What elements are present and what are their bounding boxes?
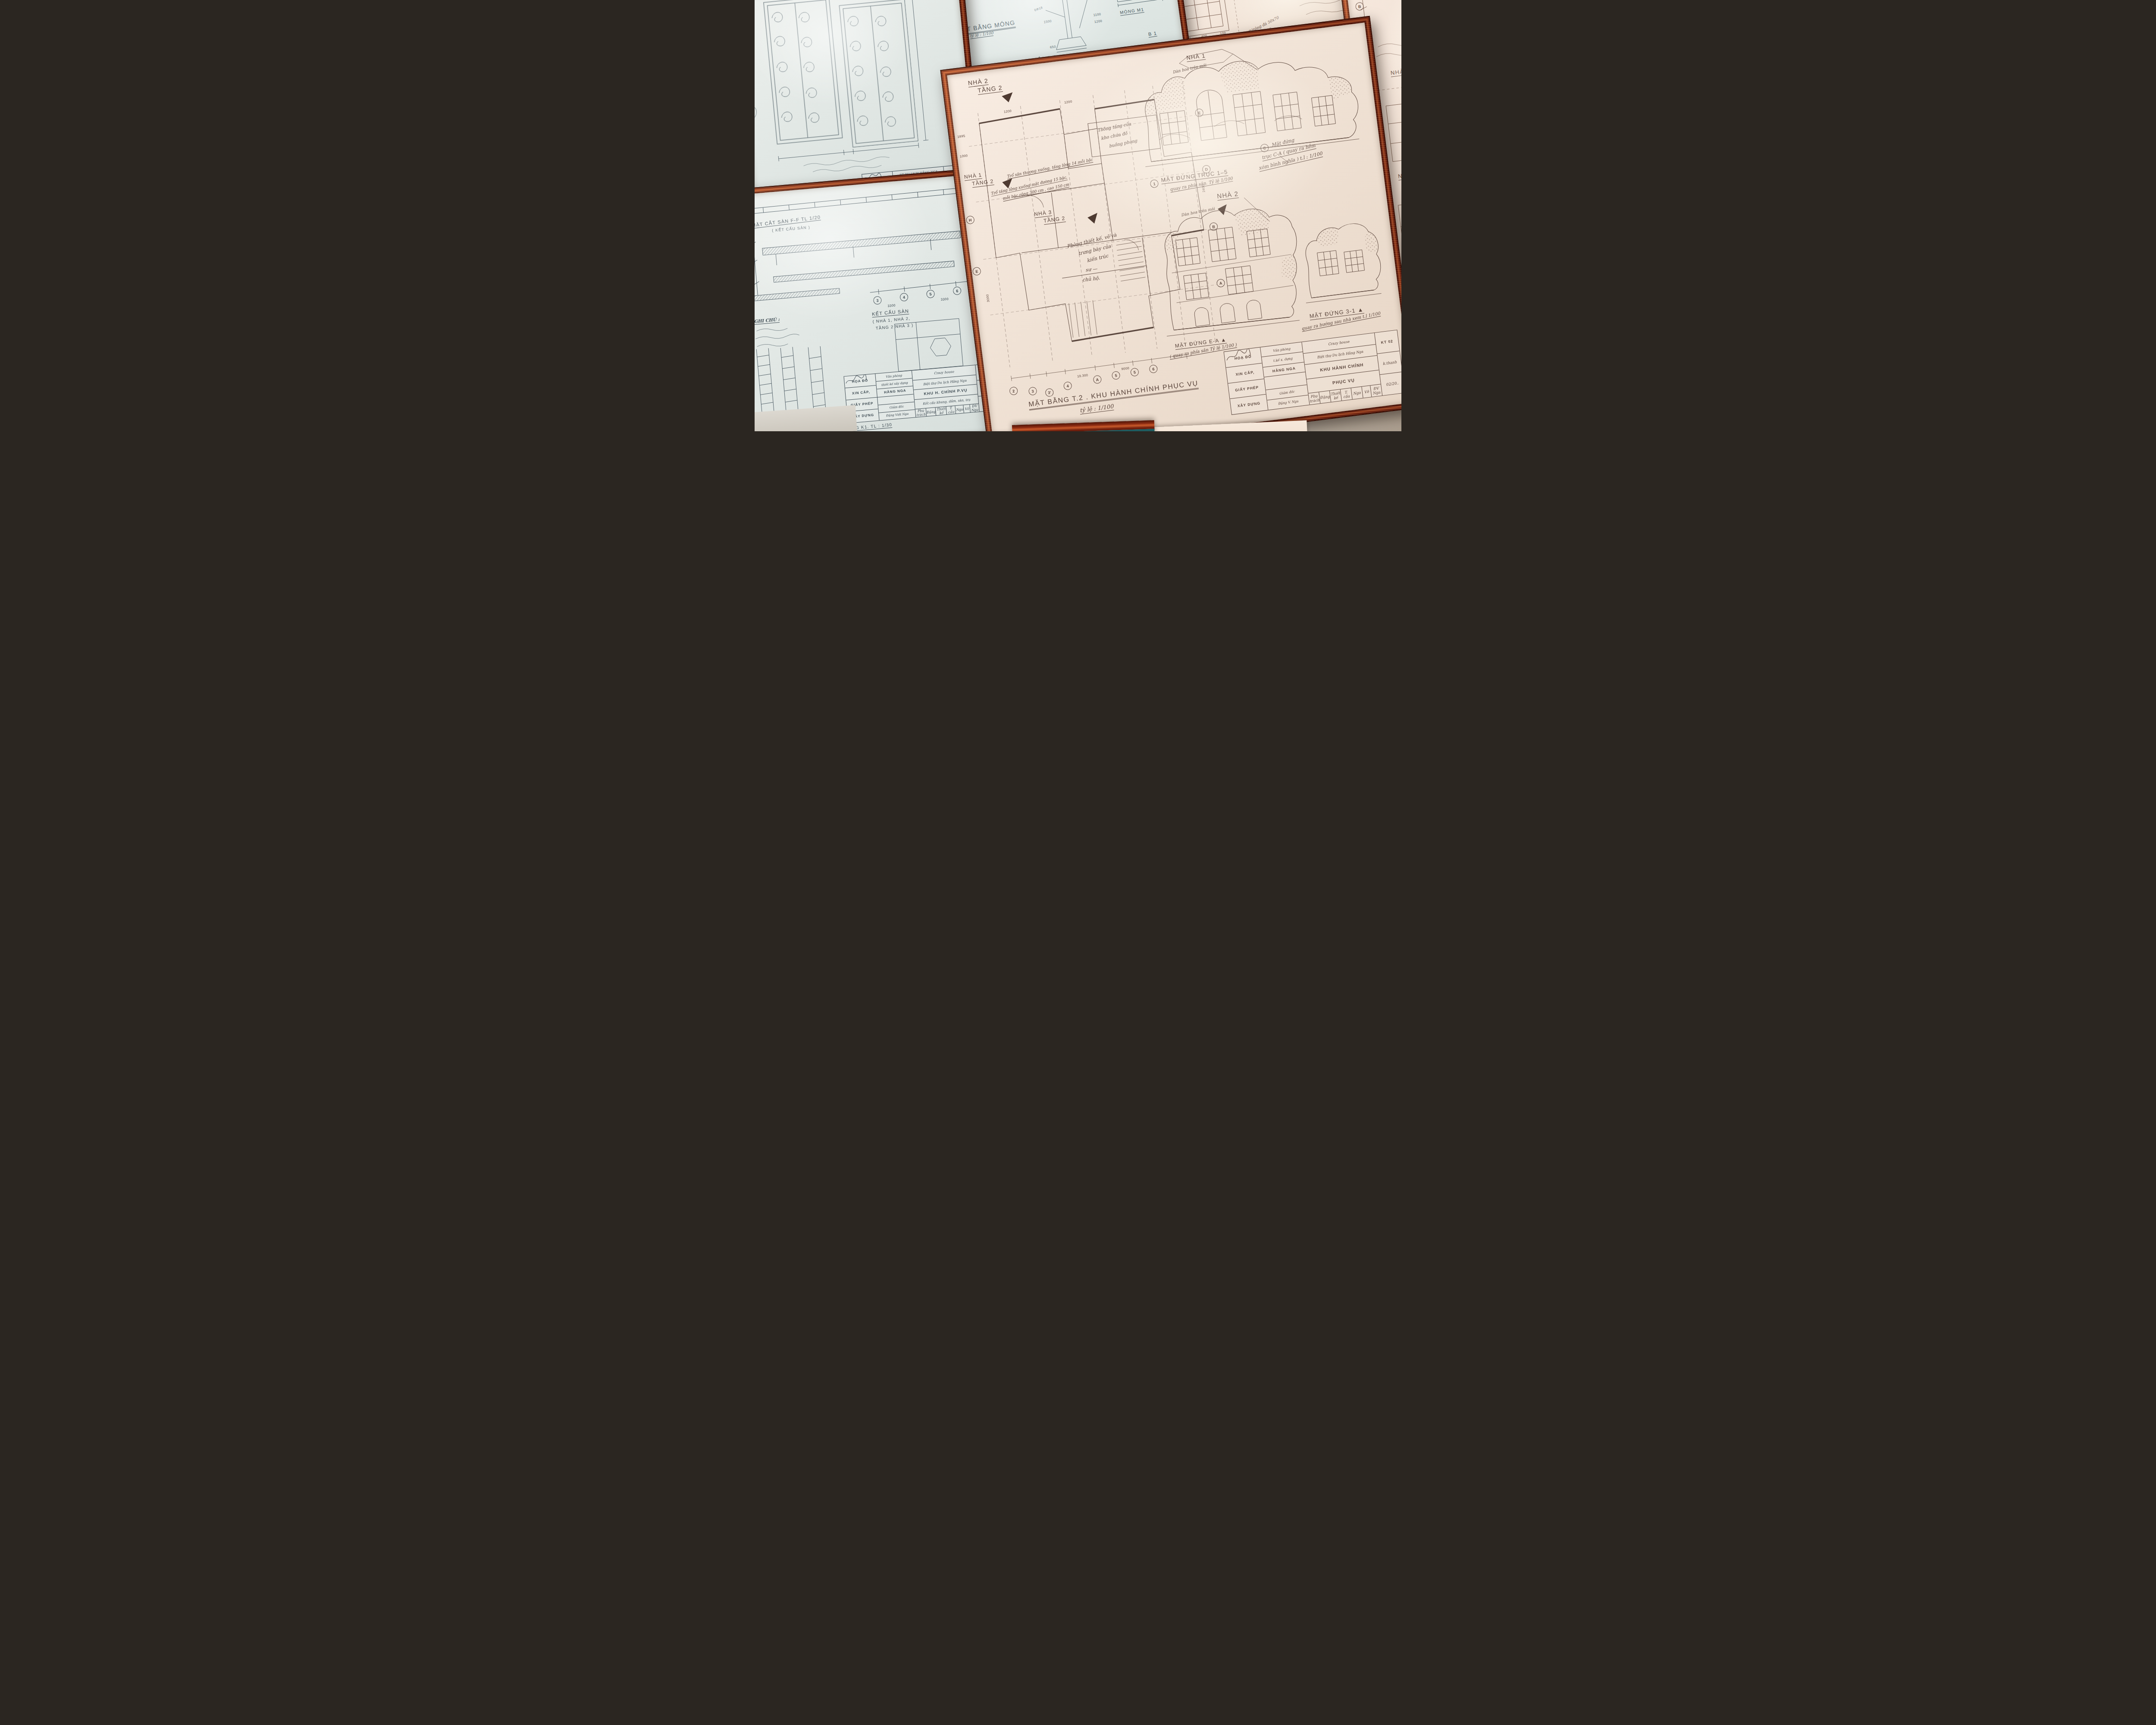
dim-label: 650 (1050, 44, 1056, 49)
photo-wall-of-framed-blueprints: VP thiết kế HẰNG NGA BT DU LỊCH HẰNG NGA… (755, 0, 1401, 431)
sheet-code: KT 02 (1375, 330, 1400, 354)
footing-b1-label: B 1 (1148, 30, 1157, 38)
role-name2: Nga (956, 405, 964, 414)
role-name3: ĐV Nga (970, 404, 979, 412)
role-cell3: T. cầu (946, 406, 956, 414)
role-cell: Phụ trách (1308, 392, 1320, 405)
role-cell2: Thiết kế (936, 407, 947, 415)
blueprint-paper: NHÀ 2 TẦNG 2 NHÀ 1 TẦNG 2 NHÀ 3 TẦNG 2 T… (947, 22, 1401, 431)
dim-label: 3300 (887, 303, 896, 308)
role-cell4: Vẽ (963, 405, 970, 413)
role-cell: Phụ trách (915, 408, 927, 417)
role-name3: ĐV Nga (1370, 384, 1382, 397)
role-name2: Nga (1351, 387, 1363, 399)
sheet-code2: k.thanh (1377, 351, 1401, 375)
role-name: Đặng (1319, 391, 1331, 403)
role-cell3: T. cầu (1341, 388, 1353, 401)
framed-drawing-main-sheet: NHÀ 2 TẦNG 2 NHÀ 1 TẦNG 2 NHÀ 3 TẦNG 2 T… (940, 16, 1401, 431)
role-cell2: Thiết kế (1330, 389, 1342, 402)
dim-label: 3300 (940, 297, 949, 302)
sheet-code3: 02/20.. (1380, 372, 1401, 395)
role-name: Đặng (926, 408, 937, 416)
